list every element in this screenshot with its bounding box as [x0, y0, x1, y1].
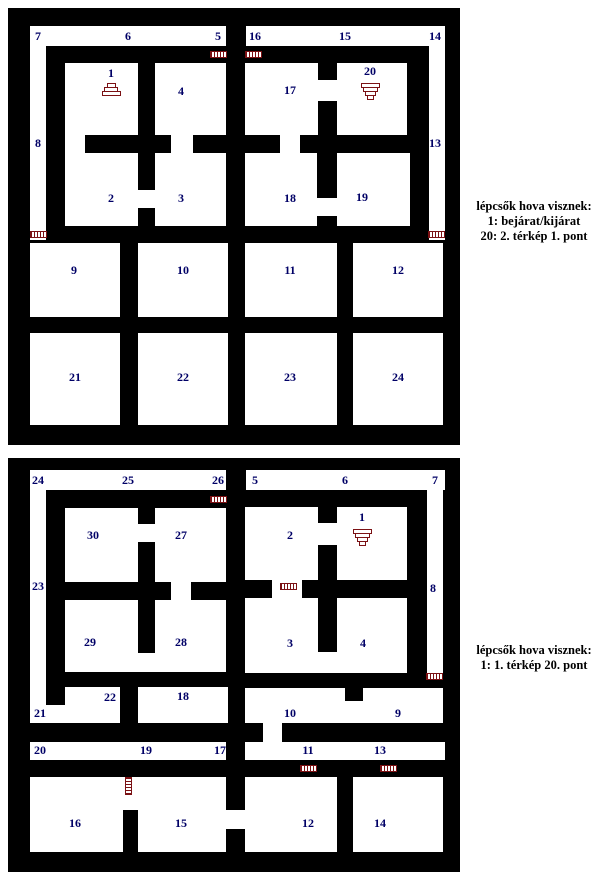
legend-line: lépcsők hova visznek: — [460, 643, 608, 658]
map-label-17: 17 — [284, 84, 296, 96]
legend-line: 1: bejárat/kijárat — [460, 214, 608, 229]
floor-area — [30, 742, 226, 760]
floor-area — [245, 153, 317, 226]
door-marker — [245, 51, 262, 58]
floor-area — [30, 777, 123, 852]
floor-area — [171, 582, 191, 600]
map-label-20: 20 — [34, 744, 46, 756]
floor-area — [337, 153, 410, 226]
map-label-4: 4 — [178, 85, 184, 97]
door-marker — [426, 673, 443, 680]
floor-area — [65, 153, 138, 226]
legend-line: 20: 2. térkép 1. pont — [460, 229, 608, 244]
floor-area — [65, 600, 138, 672]
floor-area — [155, 508, 226, 582]
stairs-legend-map-1: lépcsők hova visznek:1: bejárat/kijárat2… — [460, 199, 608, 244]
map-label-5: 5 — [252, 474, 258, 486]
floor-area — [226, 810, 245, 829]
floor-area — [65, 63, 138, 135]
page: { "page": { "width": 608, "height": 880,… — [0, 0, 608, 880]
floor-area — [30, 243, 120, 317]
floor-area — [155, 600, 226, 672]
map-label-15: 15 — [339, 30, 351, 42]
map-label-10: 10 — [177, 264, 189, 276]
stairs-down-icon — [352, 530, 372, 546]
floor-area — [318, 652, 337, 673]
map-label-28: 28 — [175, 636, 187, 648]
map-label-13: 13 — [374, 744, 386, 756]
door-marker — [428, 231, 445, 238]
map-label-16: 16 — [249, 30, 261, 42]
map-label-18: 18 — [177, 690, 189, 702]
floor-area — [155, 63, 226, 135]
map-label-24: 24 — [32, 474, 44, 486]
map-label-9: 9 — [395, 707, 401, 719]
map-label-9: 9 — [71, 264, 77, 276]
door-marker — [210, 51, 227, 58]
floor-area — [263, 723, 282, 742]
stairs-step — [102, 91, 121, 96]
door-marker — [125, 777, 132, 795]
floor-area — [353, 243, 443, 317]
floor-area — [318, 523, 337, 545]
door-marker — [30, 231, 47, 238]
map-label-14: 14 — [374, 817, 386, 829]
door-marker — [280, 583, 297, 590]
map-label-11: 11 — [302, 744, 313, 756]
map-label-3: 3 — [178, 192, 184, 204]
map-label-1: 1 — [108, 67, 114, 79]
floor-area — [30, 470, 46, 723]
map-label-16: 16 — [69, 817, 81, 829]
map-label-24: 24 — [392, 371, 404, 383]
floor-area — [427, 470, 443, 680]
door-marker — [300, 765, 317, 772]
floor-area — [245, 63, 318, 135]
stairs-up-icon — [101, 84, 121, 96]
stairs-step — [359, 541, 366, 546]
map-label-27: 27 — [175, 529, 187, 541]
floor-area — [138, 190, 155, 208]
map-label-6: 6 — [125, 30, 131, 42]
floor-area — [138, 777, 226, 852]
map-label-21: 21 — [34, 707, 46, 719]
map-label-5: 5 — [215, 30, 221, 42]
map-label-23: 23 — [32, 580, 44, 592]
map-label-30: 30 — [87, 529, 99, 541]
map-label-20: 20 — [364, 65, 376, 77]
map-label-18: 18 — [284, 192, 296, 204]
floor-area — [353, 777, 443, 852]
map-label-6: 6 — [342, 474, 348, 486]
floor-area — [337, 598, 407, 673]
map-label-13: 13 — [429, 137, 441, 149]
map-label-2: 2 — [287, 529, 293, 541]
stairs-legend-map-2: lépcsők hova visznek:1: 1. térkép 20. po… — [460, 643, 608, 673]
floor-area — [317, 198, 337, 216]
map-label-11: 11 — [284, 264, 295, 276]
map-label-15: 15 — [175, 817, 187, 829]
map-label-19: 19 — [140, 744, 152, 756]
map-label-12: 12 — [302, 817, 314, 829]
floor-area — [65, 508, 138, 582]
stairs-down-icon — [360, 84, 380, 100]
map-label-19: 19 — [356, 191, 368, 203]
stairs-step — [367, 95, 374, 100]
wall-segment — [345, 688, 363, 701]
floor-area — [245, 777, 337, 852]
dungeon-map-1: 765161514813141720231819910111221222324 — [8, 8, 460, 445]
dungeon-map-2: 2425265672383027212928342122181092019171… — [8, 458, 460, 872]
map-label-7: 7 — [432, 474, 438, 486]
map-label-25: 25 — [122, 474, 134, 486]
map-label-1: 1 — [359, 511, 365, 523]
floor-area — [138, 243, 228, 317]
map-label-2: 2 — [108, 192, 114, 204]
map-label-4: 4 — [360, 637, 366, 649]
floor-area — [171, 135, 193, 153]
floor-area — [138, 653, 155, 672]
floor-area — [429, 26, 445, 240]
floor-area — [138, 524, 155, 542]
floor-area — [245, 742, 445, 760]
map-label-21: 21 — [69, 371, 81, 383]
map-label-14: 14 — [429, 30, 441, 42]
map-label-22: 22 — [104, 691, 116, 703]
floor-area — [30, 26, 46, 240]
floor-area — [245, 507, 318, 580]
map-label-26: 26 — [212, 474, 224, 486]
door-marker — [210, 496, 227, 503]
map-label-10: 10 — [284, 707, 296, 719]
map-label-22: 22 — [177, 371, 189, 383]
floor-area — [245, 598, 318, 673]
map-label-12: 12 — [392, 264, 404, 276]
legend-line: lépcsők hova visznek: — [460, 199, 608, 214]
map-label-3: 3 — [287, 637, 293, 649]
floor-area — [245, 243, 337, 317]
floor-area — [337, 507, 407, 580]
floor-area — [65, 135, 85, 153]
map-label-8: 8 — [430, 582, 436, 594]
floor-area — [280, 135, 300, 153]
map-label-17: 17 — [214, 744, 226, 756]
legend-line: 1: 1. térkép 20. pont — [460, 658, 608, 673]
map-label-29: 29 — [84, 636, 96, 648]
floor-area — [245, 688, 443, 723]
map-label-23: 23 — [284, 371, 296, 383]
floor-area — [155, 153, 226, 226]
floor-area — [318, 80, 337, 101]
map-label-7: 7 — [35, 30, 41, 42]
door-marker — [380, 765, 397, 772]
map-label-8: 8 — [35, 137, 41, 149]
